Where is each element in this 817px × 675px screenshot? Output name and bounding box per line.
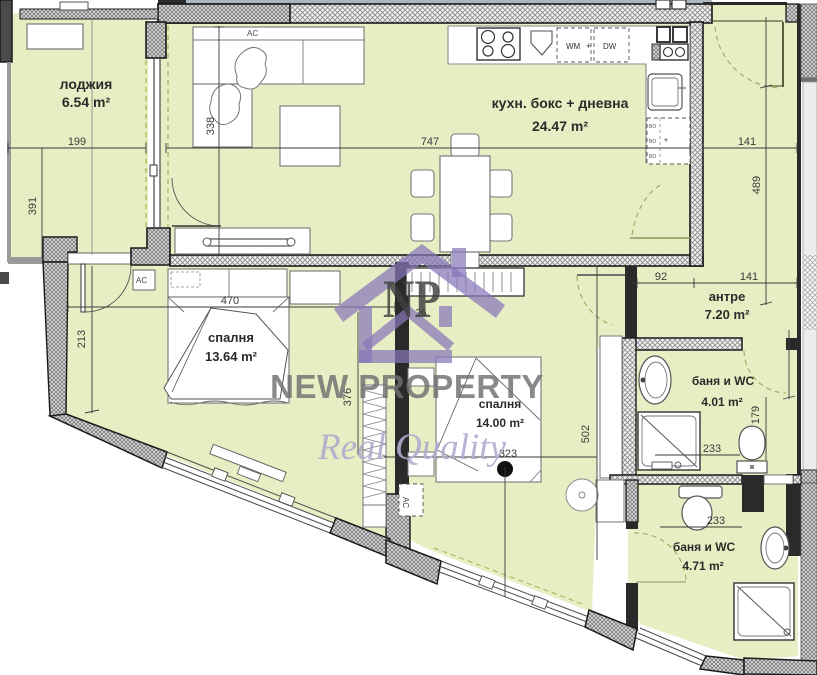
svg-text:141: 141: [738, 136, 756, 148]
svg-text:391: 391: [27, 197, 39, 215]
svg-text:баня и WC: баня и WC: [673, 540, 736, 554]
svg-text:13.64 m²: 13.64 m²: [205, 349, 258, 364]
svg-text:AC: AC: [247, 29, 258, 38]
svg-text:470: 470: [221, 295, 239, 307]
svg-text:кухн. бокс + дневна: кухн. бокс + дневна: [492, 95, 629, 111]
svg-text:BO: BO: [649, 139, 656, 145]
svg-text:213: 213: [76, 330, 88, 348]
svg-text:6.54 m²: 6.54 m²: [62, 94, 111, 110]
svg-text:199: 199: [68, 136, 86, 148]
svg-text:24.47 m²: 24.47 m²: [532, 118, 588, 134]
svg-text:лоджия: лоджия: [60, 76, 113, 92]
svg-text:Real Quality: Real Quality: [317, 427, 507, 468]
svg-text:*: *: [664, 137, 668, 148]
svg-text:AC: AC: [401, 497, 410, 508]
svg-text:NP: NP: [383, 269, 441, 329]
svg-text:NEW PROPERTY: NEW PROPERTY: [270, 368, 544, 405]
svg-text:141: 141: [740, 271, 758, 283]
svg-text:92: 92: [655, 271, 667, 283]
svg-text:233: 233: [707, 515, 725, 527]
svg-text:BO: BO: [649, 124, 656, 130]
svg-text:WM: WM: [566, 42, 581, 51]
svg-text:антре: антре: [709, 289, 746, 304]
svg-text:+: +: [586, 41, 591, 51]
svg-text:502: 502: [580, 425, 592, 443]
svg-text:338: 338: [205, 117, 217, 135]
svg-text:233: 233: [703, 443, 721, 455]
svg-text:AC: AC: [136, 276, 147, 285]
svg-text:489: 489: [751, 176, 763, 194]
svg-text:BO: BO: [649, 154, 656, 160]
svg-text:4.71 m²: 4.71 m²: [682, 559, 723, 573]
svg-text:спалня: спалня: [208, 330, 254, 345]
svg-text:179: 179: [750, 406, 762, 424]
svg-text:4.01 m²: 4.01 m²: [701, 395, 742, 409]
svg-text:7.20 m²: 7.20 m²: [705, 307, 750, 322]
svg-text:DW: DW: [603, 42, 617, 51]
svg-text:баня и WC: баня и WC: [692, 374, 755, 388]
svg-text:747: 747: [421, 136, 439, 148]
